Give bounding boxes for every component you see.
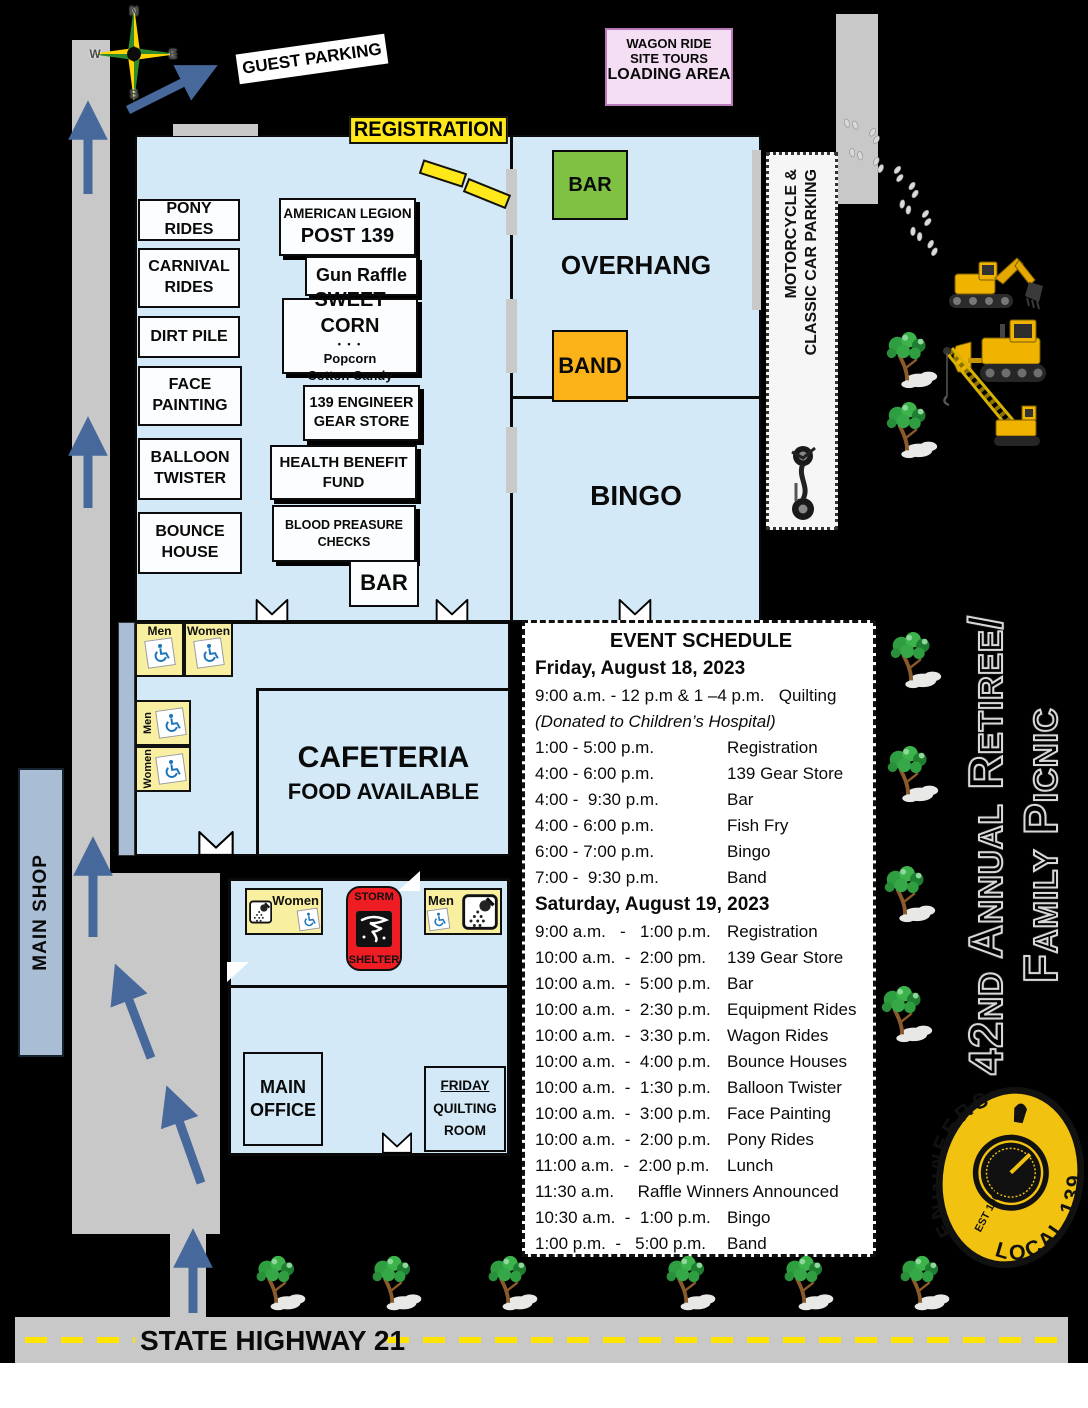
schedule-time: 10:30 a.m. - 1:00 p.m. bbox=[535, 1205, 727, 1231]
shower-men-box: Men bbox=[424, 888, 502, 935]
shower-men-label: Men bbox=[428, 893, 454, 908]
schedule-time: 10:00 a.m. - 1:30 p.m. bbox=[535, 1075, 727, 1101]
hall-bar-box: BAR bbox=[349, 560, 419, 607]
wall-opening-top bbox=[173, 124, 258, 136]
wagon-line3: LOADING AREA bbox=[608, 66, 731, 84]
main-office-label-1: MAIN bbox=[260, 1076, 306, 1099]
event-schedule-panel: EVENT SCHEDULE Friday, August 18, 2023 9… bbox=[522, 620, 876, 1257]
wall-opening bbox=[506, 299, 517, 373]
shower-women-label: Women bbox=[272, 893, 319, 908]
quilting-room-box: FRIDAY QUILTING ROOM bbox=[424, 1066, 506, 1152]
pony-rides-box: PONY RIDES bbox=[138, 199, 240, 241]
tree-icon bbox=[881, 744, 943, 806]
banner-line-1: 42nd Annual Retiree/ bbox=[958, 580, 1013, 1110]
schedule-event: Band bbox=[727, 865, 767, 891]
motorcycle-parking-label-1: MOTORCYCLE & bbox=[783, 169, 801, 298]
footprints-icon bbox=[846, 144, 866, 164]
schedule-event: Bar bbox=[727, 971, 753, 997]
legion-label-1: AMERICAN LEGION bbox=[283, 205, 411, 223]
quilting-label-3: ROOM bbox=[444, 1120, 486, 1143]
highway-label: STATE HIGHWAY 21 bbox=[140, 1325, 405, 1357]
pony-rides-label: PONY RIDES bbox=[140, 199, 238, 241]
carnival-label-2: RIDES bbox=[165, 278, 214, 299]
restroom-women-side: Women bbox=[135, 746, 191, 792]
friday-quilting-line: 9:00 a.m. - 12 p.m & 1 –4 p.m. Quilting bbox=[535, 683, 867, 709]
main-shop-label: MAIN SHOP bbox=[30, 854, 52, 971]
gun-raffle-label: Gun Raffle bbox=[316, 264, 407, 287]
schedule-row: 10:00 a.m. - 3:00 p.m. Face Painting bbox=[535, 1101, 867, 1127]
schedule-event: Wagon Rides bbox=[727, 1023, 828, 1049]
bounce-label-1: BOUNCE bbox=[155, 522, 224, 543]
blood-pressure-label-1: BLOOD PREASURE bbox=[285, 517, 403, 533]
restrooms-side: Men Women bbox=[135, 700, 191, 792]
schedule-row: 6:00 - 7:00 p.m. Bingo bbox=[535, 839, 867, 865]
wheelchair-icon bbox=[159, 758, 182, 781]
gear-store-label-1: 139 ENGINEER bbox=[310, 394, 414, 413]
schedule-event: Face Painting bbox=[727, 1101, 831, 1127]
carnival-rides-box: CARNIVAL RIDES bbox=[138, 248, 240, 308]
highway-dash-right bbox=[387, 1337, 1057, 1343]
compass-rose-icon: N E S W bbox=[88, 2, 180, 102]
schedule-time: 6:00 - 7:00 p.m. bbox=[535, 839, 727, 865]
tree-icon bbox=[894, 1254, 954, 1314]
schedule-row: 10:30 a.m. - 1:00 p.m. Bingo bbox=[535, 1205, 867, 1231]
band-label: BAND bbox=[558, 353, 622, 379]
tree-icon bbox=[482, 1254, 542, 1314]
bounce-label-2: HOUSE bbox=[162, 543, 219, 564]
tornado-icon bbox=[356, 911, 392, 947]
door-swing-icon bbox=[618, 599, 652, 622]
food-available-label: FOOD AVAILABLE bbox=[288, 779, 479, 805]
schedule-row: 10:00 a.m. - 2:00 p.m. Pony Rides bbox=[535, 1127, 867, 1153]
schedule-row: 7:00 - 9:30 p.m. Band bbox=[535, 865, 867, 891]
schedule-time: 11:00 a.m. - 2:00 p.m. bbox=[535, 1153, 727, 1179]
popcorn-label: Popcorn bbox=[324, 351, 377, 368]
schedule-row: 10:00 a.m. - 5:00 p.m. Bar bbox=[535, 971, 867, 997]
motorcycle-parking-label-2: CLASSIC CAR PARKING bbox=[803, 169, 821, 355]
tree-icon bbox=[660, 1254, 720, 1314]
sweet-corn-dots: • • • bbox=[338, 339, 362, 351]
tree-icon bbox=[880, 330, 942, 392]
picnic-site-map: STATE HIGHWAY 21 N E S W GUEST PARKING W… bbox=[0, 0, 1088, 1408]
band-box: BAND bbox=[552, 330, 628, 402]
tree-icon bbox=[250, 1254, 310, 1314]
road-left bbox=[72, 40, 110, 873]
highway-dash-left bbox=[25, 1337, 135, 1343]
restroom-men-side: Men bbox=[135, 700, 191, 746]
wheelchair-icon bbox=[159, 712, 182, 735]
balloon-twister-box: BALLOON TWISTER bbox=[138, 438, 242, 500]
schedule-event: Bingo bbox=[727, 1205, 770, 1231]
storm-label: STORM bbox=[354, 891, 394, 903]
health-fund-box: HEALTH BENEFIT FUND bbox=[270, 445, 417, 500]
dirt-pile-label: DIRT PILE bbox=[150, 327, 227, 348]
shower-icon bbox=[249, 894, 272, 930]
schedule-title: EVENT SCHEDULE bbox=[535, 627, 867, 655]
balloon-label-1: BALLOON bbox=[150, 448, 229, 469]
schedule-event: 139 Gear Store bbox=[727, 945, 843, 971]
door-swing-icon bbox=[382, 1131, 412, 1155]
saturday-heading: Saturday, August 19, 2023 bbox=[535, 891, 867, 919]
balloon-label-2: TWISTER bbox=[154, 469, 226, 490]
crane-icon bbox=[930, 344, 1042, 448]
schedule-time: 10:00 a.m. - 4:00 p.m. bbox=[535, 1049, 727, 1075]
footprints-icon bbox=[896, 198, 916, 218]
motorcycle-parking-strip: MOTORCYCLE & CLASSIC CAR PARKING bbox=[766, 152, 838, 530]
corner-marker bbox=[227, 962, 249, 982]
raffle-line: 11:30 a.m. Raffle Winners Announced bbox=[535, 1179, 867, 1205]
svg-text:N: N bbox=[130, 4, 139, 18]
main-office-label-2: OFFICE bbox=[250, 1099, 316, 1122]
sweet-corn-box: SWEET CORN • • • Popcorn Cotton Candy bbox=[282, 298, 418, 374]
friday-heading: Friday, August 18, 2023 bbox=[535, 655, 867, 683]
motorcycle-icon bbox=[787, 443, 819, 525]
door-swing-icon bbox=[196, 831, 236, 856]
gear-store-box: 139 ENGINEER GEAR STORE bbox=[303, 385, 420, 441]
schedule-event: Registration bbox=[727, 919, 818, 945]
schedule-event: Bingo bbox=[727, 839, 770, 865]
dirt-pile-box: DIRT PILE bbox=[138, 316, 240, 358]
quilting-label-2: QUILTING bbox=[433, 1098, 497, 1121]
shower-women-box: Women bbox=[245, 888, 323, 935]
corner-marker bbox=[398, 871, 420, 891]
saturday-rows-2: 10:30 a.m. - 1:00 p.m. Bingo 1:00 p.m. -… bbox=[535, 1205, 867, 1257]
office-wall bbox=[231, 985, 507, 988]
schedule-event: 139 Gear Store bbox=[727, 761, 843, 787]
schedule-row: 10:00 a.m. - 2:00 pm. 139 Gear Store bbox=[535, 945, 867, 971]
interior-wall-horizontal bbox=[510, 396, 760, 399]
hall-bar-label: BAR bbox=[360, 569, 408, 598]
road-top-right bbox=[836, 14, 878, 204]
friday-quilting-note: (Donated to Children’s Hospital) bbox=[535, 709, 867, 735]
storm-shelter: STORM SHELTER bbox=[346, 886, 402, 971]
schedule-time: 10:00 a.m. - 3:30 p.m. bbox=[535, 1023, 727, 1049]
schedule-event: Bar bbox=[727, 787, 753, 813]
health-fund-label-2: FUND bbox=[323, 473, 365, 493]
schedule-event: Bounce Houses bbox=[727, 1049, 847, 1075]
tree-icon bbox=[878, 864, 940, 926]
schedule-event: Lunch bbox=[727, 1153, 773, 1179]
face-label-2: PAINTING bbox=[152, 396, 227, 417]
wall-opening-right bbox=[752, 150, 761, 310]
saturday-rows: 9:00 a.m. - 1:00 p.m. Registration 10:00… bbox=[535, 919, 867, 1179]
carnival-label-1: CARNIVAL bbox=[148, 257, 229, 278]
excavator-icon bbox=[945, 246, 1045, 310]
schedule-row: 4:00 - 9:30 p.m. Bar bbox=[535, 787, 867, 813]
gear-store-label-2: GEAR STORE bbox=[314, 413, 410, 432]
wheelchair-icon bbox=[197, 642, 220, 665]
schedule-time: 10:00 a.m. - 2:30 p.m. bbox=[535, 997, 727, 1023]
schedule-row: 4:00 - 6:00 p.m. Fish Fry bbox=[535, 813, 867, 839]
schedule-time: 9:00 a.m. - 1:00 p.m. bbox=[535, 919, 727, 945]
shelter-label: SHELTER bbox=[349, 954, 400, 966]
shower-icon bbox=[462, 894, 498, 930]
sweet-corn-label: SWEET CORN bbox=[284, 287, 416, 339]
restroom-women-label: Women bbox=[187, 624, 230, 638]
cafeteria-room: CAFETERIA FOOD AVAILABLE bbox=[256, 688, 508, 854]
svg-text:E: E bbox=[169, 47, 177, 61]
restroom-women: Women bbox=[184, 622, 233, 677]
face-label-1: FACE bbox=[169, 375, 212, 396]
main-office-box: MAIN OFFICE bbox=[243, 1052, 323, 1146]
schedule-time: 10:00 a.m. - 3:00 p.m. bbox=[535, 1101, 727, 1127]
cafeteria-west-wall bbox=[118, 622, 135, 856]
schedule-time: 4:00 - 6:00 p.m. bbox=[535, 813, 727, 839]
tree-icon bbox=[875, 984, 937, 1046]
main-shop: MAIN SHOP bbox=[18, 768, 64, 1057]
cotton-candy-label: Cotton Candy bbox=[307, 368, 392, 385]
schedule-event: Fish Fry bbox=[727, 813, 788, 839]
overhang-bar-box: BAR bbox=[552, 150, 628, 220]
blood-pressure-label-2: CHECKS bbox=[318, 534, 371, 550]
schedule-row: 10:00 a.m. - 4:00 p.m. Bounce Houses bbox=[535, 1049, 867, 1075]
schedule-time: 7:00 - 9:30 p.m. bbox=[535, 865, 727, 891]
wheelchair-icon bbox=[430, 911, 447, 928]
tree-icon bbox=[366, 1254, 426, 1314]
svg-text:W: W bbox=[89, 47, 101, 61]
schedule-row: 11:00 a.m. - 2:00 p.m. Lunch bbox=[535, 1153, 867, 1179]
schedule-row: 4:00 - 6:00 p.m. 139 Gear Store bbox=[535, 761, 867, 787]
quilting-label-1: FRIDAY bbox=[440, 1075, 489, 1098]
tree-icon bbox=[880, 400, 942, 462]
schedule-time: 4:00 - 6:00 p.m. bbox=[535, 761, 727, 787]
schedule-time: 10:00 a.m. - 5:00 p.m. bbox=[535, 971, 727, 997]
face-painting-box: FACE PAINTING bbox=[138, 366, 242, 426]
bingo-label: BINGO bbox=[511, 480, 761, 512]
schedule-row: 9:00 a.m. - 1:00 p.m. Registration bbox=[535, 919, 867, 945]
door-swing-icon bbox=[255, 599, 289, 622]
restrooms-top: Men Women bbox=[135, 622, 233, 677]
tree-icon bbox=[884, 630, 946, 692]
registration-label: REGISTRATION bbox=[349, 116, 508, 144]
schedule-event: Equipment Rides bbox=[727, 997, 856, 1023]
event-banner: 42nd Annual Retiree/ Family Picnic bbox=[948, 580, 1078, 1110]
schedule-event: Pony Rides bbox=[727, 1127, 814, 1153]
overhang-bar-label: BAR bbox=[568, 174, 611, 197]
health-fund-label-1: HEALTH BENEFIT bbox=[279, 453, 407, 473]
bounce-house-box: BOUNCE HOUSE bbox=[138, 512, 242, 574]
schedule-time: 10:00 a.m. - 2:00 pm. bbox=[535, 945, 727, 971]
state-highway: STATE HIGHWAY 21 bbox=[15, 1317, 1068, 1363]
page-margin bbox=[0, 1363, 1088, 1408]
overhang-label: OVERHANG bbox=[511, 250, 761, 281]
svg-text:S: S bbox=[130, 87, 138, 101]
schedule-time: 1:00 - 5:00 p.m. bbox=[535, 735, 727, 761]
schedule-row: 10:00 a.m. - 3:30 p.m. Wagon Rides bbox=[535, 1023, 867, 1049]
restroom-women-side-label: Women bbox=[142, 749, 154, 789]
schedule-row: 10:00 a.m. - 2:30 p.m. Equipment Rides bbox=[535, 997, 867, 1023]
schedule-row: 1:00 - 5:00 p.m. Registration bbox=[535, 735, 867, 761]
schedule-event: Balloon Twister bbox=[727, 1075, 842, 1101]
road-left-wide bbox=[72, 873, 220, 1234]
legion-label-2: POST 139 bbox=[301, 223, 394, 249]
schedule-event: Band bbox=[727, 1231, 767, 1257]
engineers-local-139-logo: ENGINEERS LOCAL 139 EST 1902 bbox=[932, 1082, 1088, 1274]
road-entry bbox=[170, 1234, 206, 1320]
door-swing-icon bbox=[435, 599, 469, 622]
schedule-time: 10:00 a.m. - 2:00 p.m. bbox=[535, 1127, 727, 1153]
schedule-row: 10:00 a.m. - 1:30 p.m. Balloon Twister bbox=[535, 1075, 867, 1101]
restroom-men-label: Men bbox=[148, 624, 172, 638]
wagon-loading-area: WAGON RIDE SITE TOURS LOADING AREA bbox=[605, 28, 733, 106]
wagon-line2: SITE TOURS bbox=[630, 51, 708, 66]
american-legion-box: AMERICAN LEGION POST 139 bbox=[279, 198, 416, 256]
tree-icon bbox=[778, 1254, 838, 1314]
guest-parking-label: GUEST PARKING bbox=[236, 34, 389, 85]
restroom-men-side-label: Men bbox=[142, 712, 154, 734]
restroom-men: Men bbox=[135, 622, 184, 677]
blood-pressure-box: BLOOD PREASURE CHECKS bbox=[272, 505, 416, 562]
wheelchair-icon bbox=[300, 911, 317, 928]
schedule-time: 4:00 - 9:30 p.m. bbox=[535, 787, 727, 813]
schedule-event: Registration bbox=[727, 735, 818, 761]
wheelchair-icon bbox=[148, 642, 171, 665]
wagon-line1: WAGON RIDE bbox=[626, 36, 711, 51]
cafeteria-label: CAFETERIA bbox=[298, 741, 470, 775]
banner-line-2: Family Picnic bbox=[1013, 580, 1068, 1110]
footprints-icon bbox=[907, 225, 925, 243]
friday-rows: 1:00 - 5:00 p.m. Registration 4:00 - 6:0… bbox=[535, 735, 867, 891]
